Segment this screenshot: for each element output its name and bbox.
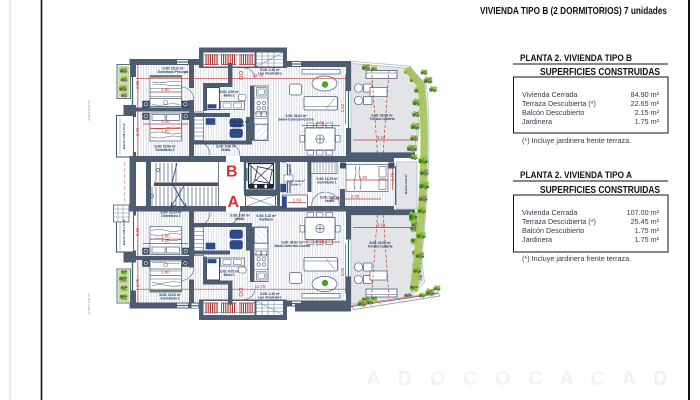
svg-text:Vestíb.: Vestíb. xyxy=(221,148,231,152)
svg-text:2.35: 2.35 xyxy=(135,80,140,89)
svg-text:4.00: 4.00 xyxy=(161,239,170,244)
svg-text:Dormitorio 3: Dormitorio 3 xyxy=(162,214,181,218)
svg-text:Jardinera: Jardinera xyxy=(522,117,552,126)
svg-text:Balcón 0.86·1.75 m²: Balcón 0.86·1.75 m² xyxy=(122,219,126,245)
svg-text:Jardinera: Jardinera xyxy=(522,235,552,244)
svg-text:Dormitorio Principal: Dormitorio Principal xyxy=(158,70,189,74)
svg-text:4.60: 4.60 xyxy=(316,121,325,126)
svg-text:1.80: 1.80 xyxy=(359,175,368,180)
svg-text:1.75 m²: 1.75 m² xyxy=(635,226,660,235)
svg-text:Salón-Comedor-Cocina: Salón-Comedor-Cocina xyxy=(278,118,314,122)
svg-text:2.75: 2.75 xyxy=(135,278,140,287)
svg-text:SUPERFICIES CONSTRUIDAS: SUPERFICIES CONSTRUIDAS xyxy=(540,67,660,78)
svg-text:84.90 m²: 84.90 m² xyxy=(631,90,660,99)
svg-text:Salón-Comedor-Cocina: Salón-Comedor-Cocina xyxy=(274,244,310,248)
svg-text:Balcón 2.06 m²: Balcón 2.06 m² xyxy=(404,174,408,194)
svg-text:Vivienda Cerrada: Vivienda Cerrada xyxy=(522,90,577,99)
svg-text:4.00: 4.00 xyxy=(161,119,170,124)
svg-text:Balcón Descubierto: Balcón Descubierto xyxy=(522,108,584,117)
svg-text:Vestíbulo: Vestíbulo xyxy=(259,218,273,222)
svg-text:1.80: 1.80 xyxy=(161,129,170,134)
svg-text:A D O C O C A C A D: A D O C O C A C A D xyxy=(367,368,674,390)
svg-text:B: B xyxy=(226,164,238,181)
svg-text:Terraza Cubierta: Terraza Cubierta xyxy=(368,245,393,249)
svg-text:Vestib.: Vestib. xyxy=(235,217,245,221)
svg-text:12.70: 12.70 xyxy=(253,73,264,78)
svg-text:1.80: 1.80 xyxy=(161,270,170,275)
svg-text:2.15 m²: 2.15 m² xyxy=(635,108,660,117)
svg-text:PLANTA 2. VIVIENDA TIPO A: PLANTA 2. VIVIENDA TIPO A xyxy=(520,170,632,180)
svg-text:(*) Incluye jardinera frente t: (*) Incluye jardinera frente terraza. xyxy=(522,136,631,145)
svg-text:Dormitorio 2: Dormitorio 2 xyxy=(161,297,180,301)
svg-text:4.60: 4.60 xyxy=(316,239,325,244)
svg-text:Balcón Descubierto: Balcón Descubierto xyxy=(522,226,584,235)
svg-text:1.60: 1.60 xyxy=(293,198,302,203)
svg-text:1.75 m²: 1.75 m² xyxy=(635,117,660,126)
svg-text:Balcón 0.86·1.75 m²: Balcón 0.86·1.75 m² xyxy=(122,123,126,149)
svg-text:Baño 1: Baño 1 xyxy=(291,183,301,187)
svg-text:SUPERFICIES CONSTRUIDAS: SUPERFICIES CONSTRUIDAS xyxy=(540,185,660,196)
svg-text:3.10: 3.10 xyxy=(377,135,386,140)
svg-text:Terraza Cubierta: Terraza Cubierta xyxy=(370,117,395,121)
svg-text:2.70: 2.70 xyxy=(390,172,395,181)
svg-text:Terraza Descubierta (*): Terraza Descubierta (*) xyxy=(522,99,596,108)
svg-text:Dormitorio 2: Dormitorio 2 xyxy=(156,148,175,152)
svg-text:Lav.-Tendedero: Lav.-Tendedero xyxy=(258,296,281,300)
svg-text:12.70: 12.70 xyxy=(255,284,266,289)
svg-text:Dormitorio 1: Dormitorio 1 xyxy=(318,181,337,185)
svg-text:Baño 3: Baño 3 xyxy=(234,124,245,128)
svg-text:Baño 2: Baño 2 xyxy=(224,273,235,277)
svg-text:2.35: 2.35 xyxy=(135,227,140,236)
svg-text:2.70: 2.70 xyxy=(351,194,360,199)
svg-text:3.10: 3.10 xyxy=(377,223,386,228)
svg-text:Vestib.: Vestib. xyxy=(325,199,335,203)
svg-text:1.80: 1.80 xyxy=(161,87,170,92)
svg-text:A: A xyxy=(228,194,240,211)
svg-text:Terraza Descubierta (*): Terraza Descubierta (*) xyxy=(522,217,596,226)
svg-text:1.75 m²: 1.75 m² xyxy=(635,235,660,244)
svg-text:5.60: 5.60 xyxy=(340,103,345,112)
svg-text:Vivienda Cerrada: Vivienda Cerrada xyxy=(522,208,577,217)
svg-text:5.60: 5.60 xyxy=(340,267,345,276)
svg-text:Baño 2: Baño 2 xyxy=(224,94,235,98)
svg-text:2.70: 2.70 xyxy=(135,127,140,136)
svg-text:+3.40 m 4.07 m²: +3.40 m 4.07 m² xyxy=(87,293,91,315)
svg-text:25.45 m²: 25.45 m² xyxy=(631,217,660,226)
svg-text:107.00 m²: 107.00 m² xyxy=(627,208,660,217)
svg-text:22.65 m²: 22.65 m² xyxy=(631,99,660,108)
svg-text:VIVIENDA TIPO B (2 DORMITORIOS: VIVIENDA TIPO B (2 DORMITORIOS) 7 unidad… xyxy=(480,6,667,17)
svg-text:(*) Incluye jardinera frente t: (*) Incluye jardinera frente terraza. xyxy=(522,254,631,263)
svg-text:+3.40 m 4.07 m²: +3.40 m 4.07 m² xyxy=(87,100,91,122)
svg-text:PLANTA 2. VIVIENDA TIPO B: PLANTA 2. VIVIENDA TIPO B xyxy=(520,53,632,63)
